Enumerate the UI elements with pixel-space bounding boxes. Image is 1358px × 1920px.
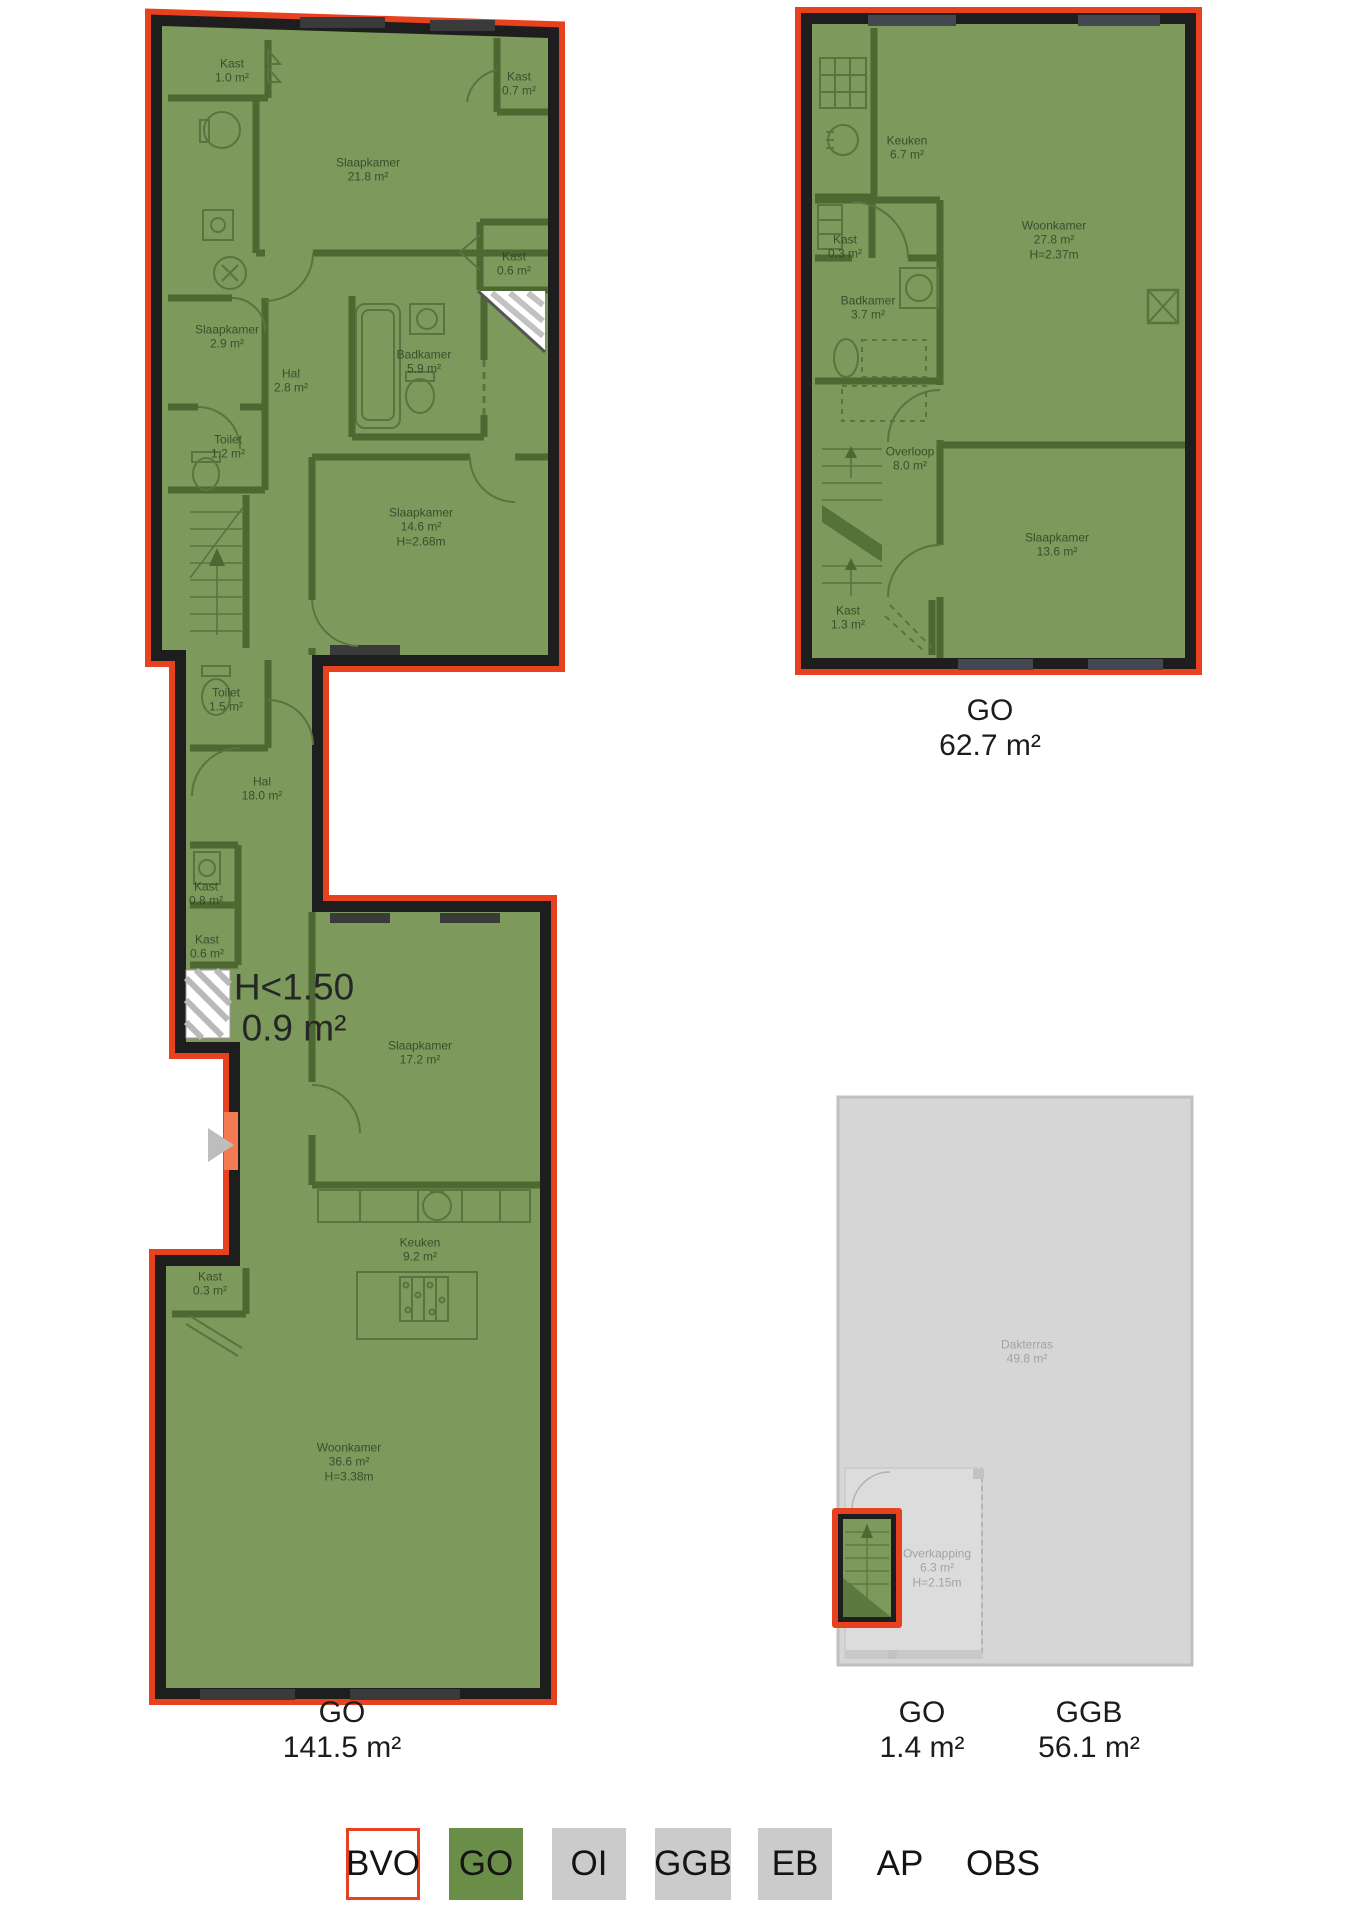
legend-label: OI — [571, 1844, 608, 1884]
area-value: 56.1 m² — [1038, 1731, 1140, 1766]
legend: BVO GO OI GGB EB AP OBS — [0, 1828, 1358, 1900]
floor-plan-2 — [812, 15, 1185, 670]
legend-item-obs: OBS — [953, 1828, 1053, 1900]
legend-label: AP — [877, 1844, 924, 1884]
legend-label: GGB — [654, 1844, 732, 1884]
area-title: GO — [879, 1696, 964, 1731]
area-value: 1.4 m² — [879, 1731, 964, 1766]
floorplan-drawing — [0, 0, 1358, 1920]
go-stair-box — [832, 1508, 902, 1628]
legend-label: GO — [459, 1844, 513, 1884]
legend-label: OBS — [966, 1844, 1040, 1884]
area-title: GO — [283, 1696, 401, 1731]
area-label-ggb-56: GGB 56.1 m² — [1038, 1696, 1140, 1766]
area-value: 141.5 m² — [283, 1731, 401, 1766]
post-marker — [888, 1650, 897, 1659]
legend-item-ggb: GGB — [655, 1828, 731, 1900]
area-label-go-62: GO 62.7 m² — [939, 694, 1041, 764]
hatched-low-height-area — [186, 970, 230, 1038]
zone-bottom-wall — [845, 1650, 982, 1659]
area-label-go-141: GO 141.5 m² — [283, 1696, 401, 1766]
legend-item-oi: OI — [552, 1828, 626, 1900]
go-area-fill — [812, 24, 1185, 658]
area-label-go-1-4: GO 1.4 m² — [879, 1696, 964, 1766]
legend-label: BVO — [346, 1844, 420, 1884]
area-title: GO — [939, 694, 1041, 729]
area-title: GGB — [1038, 1696, 1140, 1731]
legend-item-eb: EB — [758, 1828, 832, 1900]
legend-item-go: GO — [449, 1828, 523, 1900]
legend-label: EB — [772, 1844, 819, 1884]
legend-item-bvo: BVO — [346, 1828, 420, 1900]
roof-terrace-plan — [832, 1097, 1192, 1665]
floor-plan-1 — [162, 17, 548, 1700]
floorplan-page: Kast 1.0 m²Kast 0.7 m²Slaapkamer 21.8 m²… — [0, 0, 1358, 1920]
area-value: 62.7 m² — [939, 729, 1041, 764]
post-marker — [973, 1469, 984, 1479]
legend-item-ap: AP — [860, 1828, 940, 1900]
